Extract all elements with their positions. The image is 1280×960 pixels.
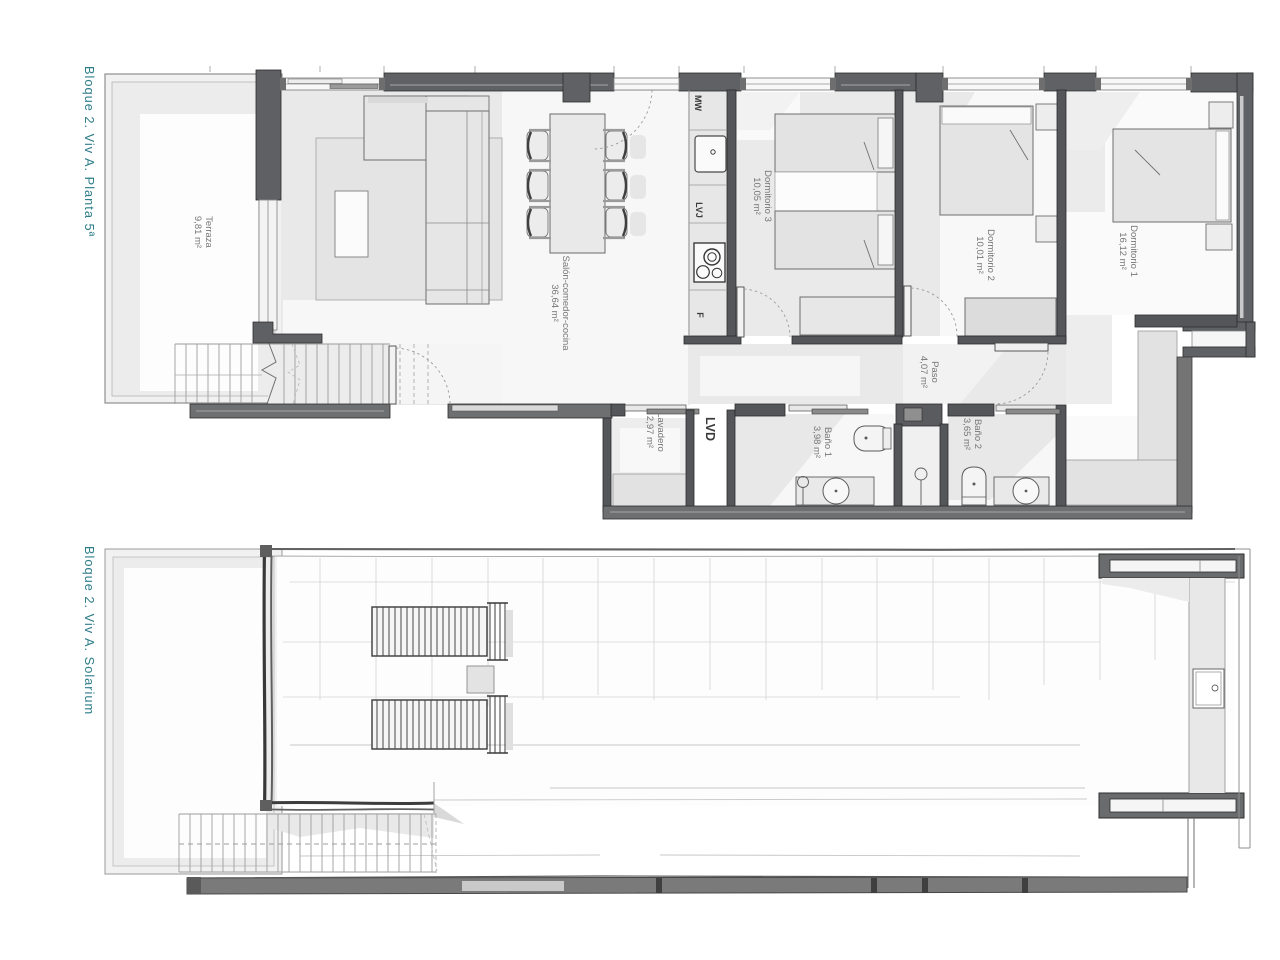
svg-text:9,81 m²: 9,81 m² bbox=[192, 216, 203, 248]
svg-text:F: F bbox=[695, 312, 705, 318]
svg-text:Dormitorio 1: Dormitorio 1 bbox=[1128, 225, 1139, 277]
svg-text:LVJ: LVJ bbox=[694, 202, 704, 218]
svg-text:3,65 m²: 3,65 m² bbox=[961, 418, 972, 450]
svg-text:Bloque 2. Viv A. Planta 5ª: Bloque 2. Viv A. Planta 5ª bbox=[82, 66, 97, 237]
svg-text:Paso: Paso bbox=[929, 361, 940, 383]
svg-text:LVD: LVD bbox=[703, 417, 717, 441]
svg-text:Dormitorio 2: Dormitorio 2 bbox=[985, 229, 996, 281]
svg-text:Dormitorio 3: Dormitorio 3 bbox=[762, 170, 773, 222]
svg-text:10,01 m²: 10,01 m² bbox=[974, 236, 985, 274]
svg-text:Baño 2: Baño 2 bbox=[972, 419, 983, 449]
svg-text:16,12 m²: 16,12 m² bbox=[1117, 232, 1128, 270]
svg-text:3,98 m²: 3,98 m² bbox=[811, 426, 822, 458]
svg-text:MW: MW bbox=[693, 95, 703, 111]
svg-text:Terraza: Terraza bbox=[203, 216, 214, 248]
svg-text:Salón-comedor-cocina: Salón-comedor-cocina bbox=[560, 255, 571, 351]
svg-text:Baño 1: Baño 1 bbox=[822, 427, 833, 457]
svg-text:10,05 m²: 10,05 m² bbox=[751, 177, 762, 215]
svg-text:4,07 m²: 4,07 m² bbox=[918, 356, 929, 388]
svg-text:Lavadero: Lavadero bbox=[655, 412, 666, 452]
svg-text:Bloque 2. Viv A. Solarium: Bloque 2. Viv A. Solarium bbox=[82, 546, 97, 715]
svg-text:2,97 m²: 2,97 m² bbox=[644, 416, 655, 448]
svg-text:36,64 m²: 36,64 m² bbox=[549, 284, 560, 322]
